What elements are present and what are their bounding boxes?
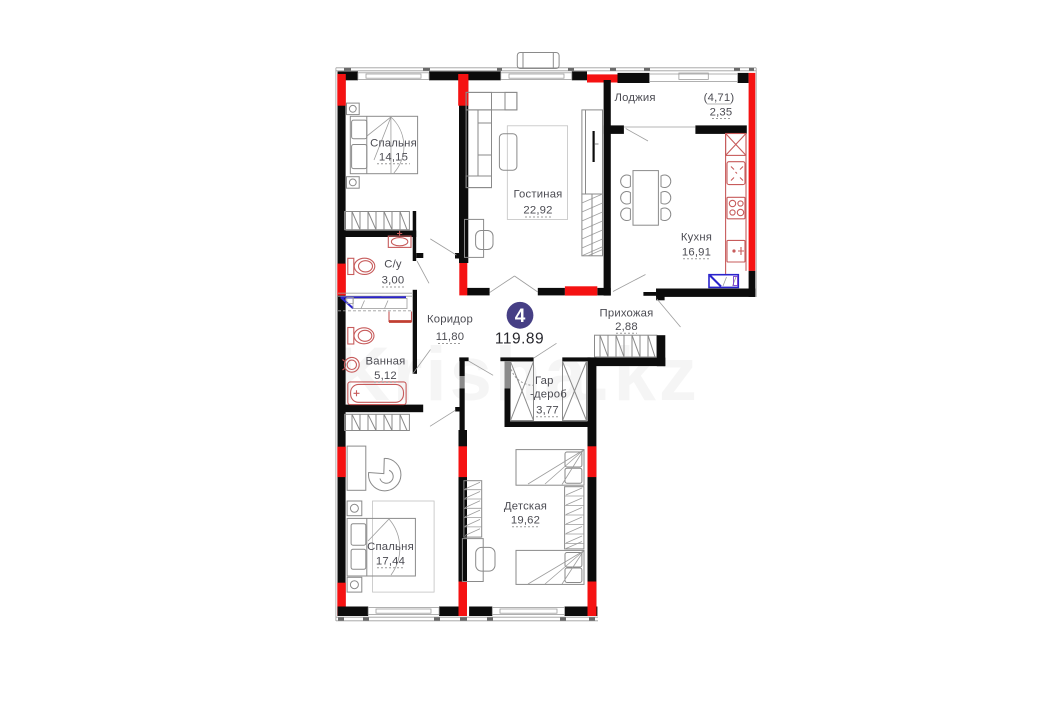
svg-text:Ванная: Ванная	[366, 356, 406, 368]
svg-text:14,15: 14,15	[379, 152, 408, 164]
svg-text:Спальня: Спальня	[370, 138, 417, 150]
svg-text:Лоджия: Лоджия	[615, 92, 656, 104]
svg-text:(4,71): (4,71)	[704, 92, 735, 104]
svg-text:Детская: Детская	[504, 501, 547, 513]
svg-text:2,35: 2,35	[710, 107, 733, 119]
svg-text:Коридор: Коридор	[427, 314, 473, 326]
svg-text:С/у: С/у	[384, 259, 402, 271]
svg-text:4: 4	[515, 306, 526, 327]
svg-text:-дероб: -дероб	[530, 389, 567, 401]
svg-text:5,12: 5,12	[374, 370, 397, 382]
svg-text:3,77: 3,77	[536, 405, 559, 417]
svg-text:Гар: Гар	[535, 375, 554, 387]
svg-text:Спальня: Спальня	[367, 541, 414, 553]
svg-text:Кухня: Кухня	[681, 232, 712, 244]
svg-text:19,62: 19,62	[511, 515, 540, 527]
svg-text:11,80: 11,80	[436, 331, 464, 343]
svg-text:3,00: 3,00	[382, 275, 405, 287]
svg-text:16,91: 16,91	[682, 247, 711, 259]
svg-text:119.89: 119.89	[495, 331, 544, 348]
svg-text:22,92: 22,92	[523, 205, 552, 217]
svg-text:2,88: 2,88	[615, 321, 638, 333]
svg-text:17,44: 17,44	[376, 556, 405, 568]
svg-text:Прихожая: Прихожая	[600, 308, 654, 320]
svg-text:Гостиная: Гостиная	[513, 189, 562, 201]
